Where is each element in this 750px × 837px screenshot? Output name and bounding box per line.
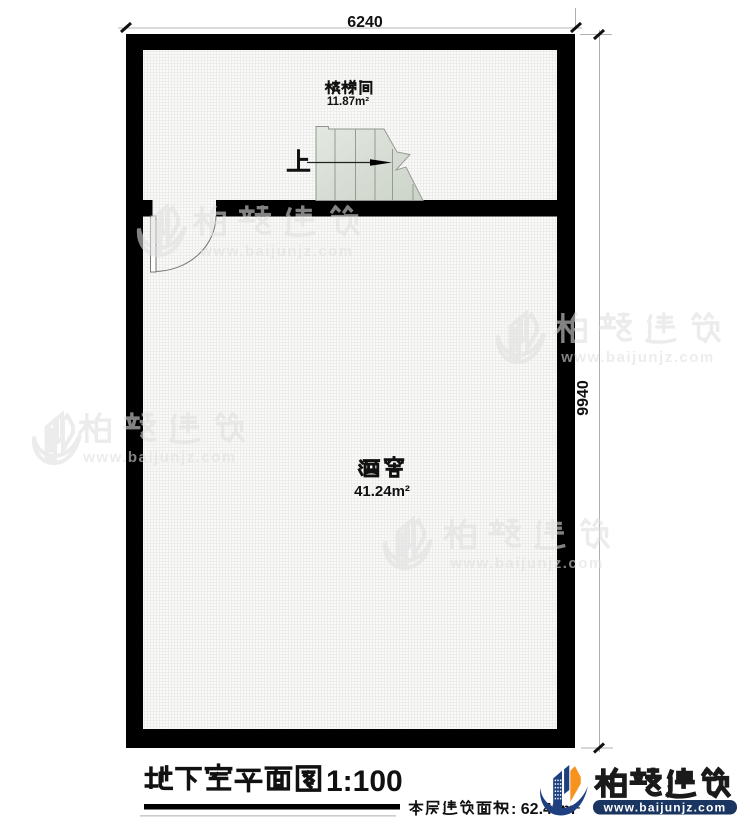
svg-text:41.24m²: 41.24m² [354,483,410,500]
svg-text:www.baijunjz.com: www.baijunjz.com [199,243,353,260]
svg-text:www.baijunjz.com: www.baijunjz.com [603,801,727,815]
svg-text:6240: 6240 [347,14,383,31]
svg-text:www.baijunjz.com: www.baijunjz.com [560,349,714,366]
svg-text:www.baijunjz.com: www.baijunjz.com [449,555,603,572]
svg-text:9940: 9940 [575,380,592,416]
svg-text:1:100: 1:100 [326,765,403,798]
svg-text:11.87m²: 11.87m² [327,96,369,108]
svg-text:www.baijunjz.com: www.baijunjz.com [82,449,236,466]
